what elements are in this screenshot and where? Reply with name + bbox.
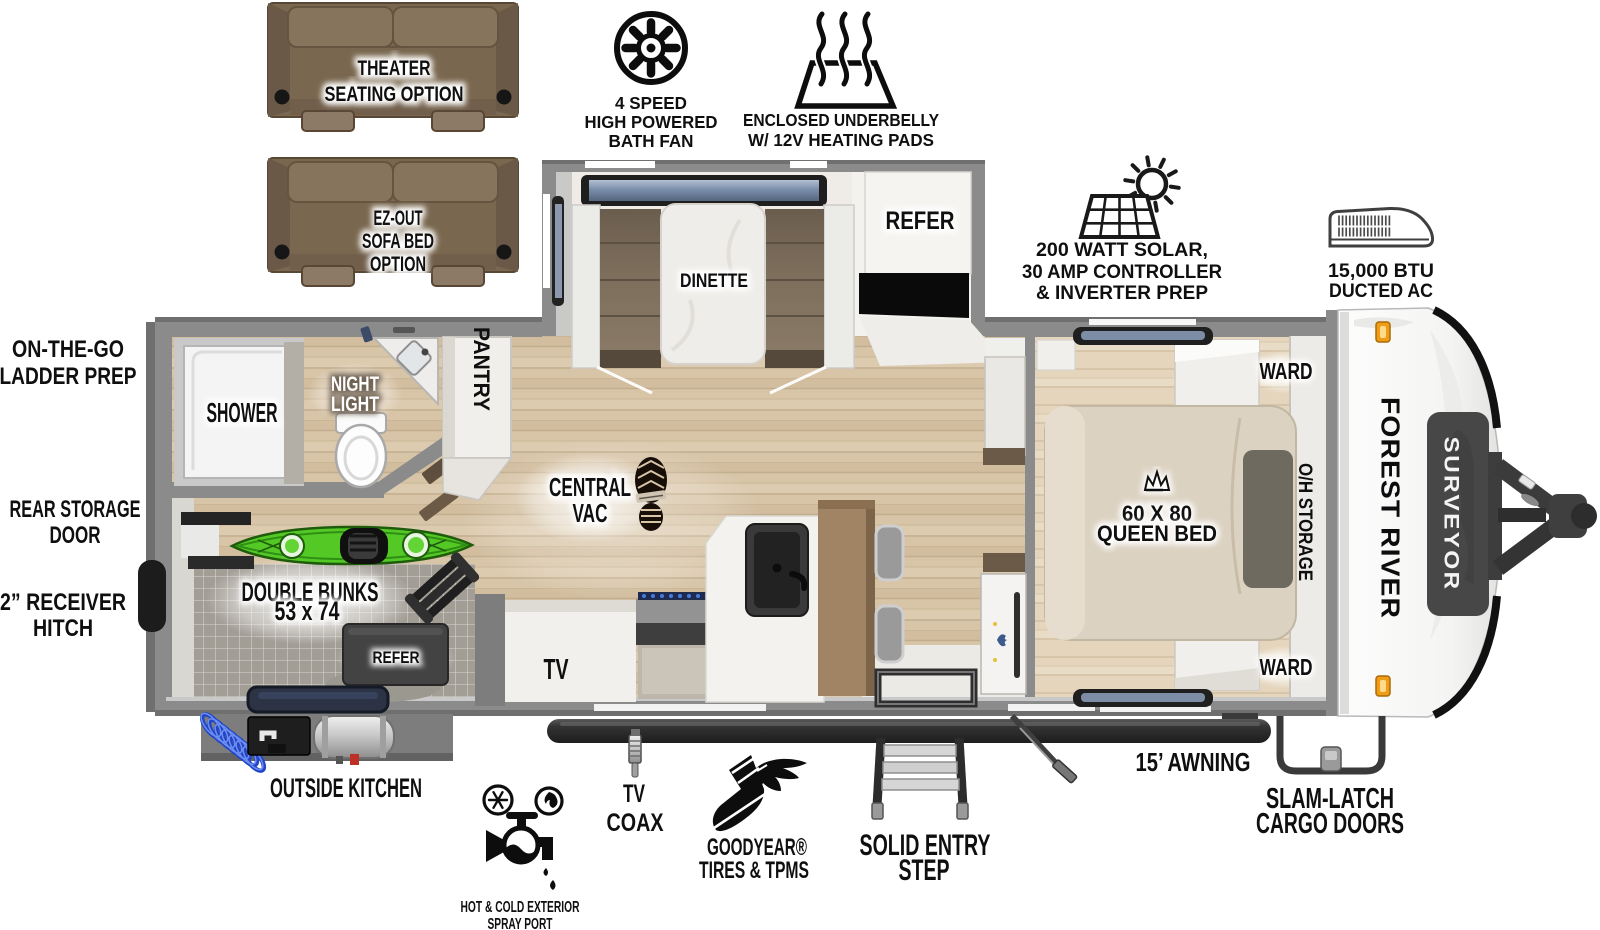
svg-text:COAX: COAX (607, 809, 664, 837)
svg-text:30 AMP CONTROLLER: 30 AMP CONTROLLER (1022, 262, 1222, 283)
svg-text:LIGHT: LIGHT (331, 393, 379, 416)
svg-text:ENCLOSED UNDERBELLY: ENCLOSED UNDERBELLY (743, 110, 939, 130)
svg-text:DUCTED AC: DUCTED AC (1329, 281, 1433, 302)
svg-text:TIRES & TPMS: TIRES & TPMS (699, 857, 809, 884)
svg-text:VAC: VAC (573, 498, 608, 528)
svg-text:SPRAY PORT: SPRAY PORT (488, 916, 553, 930)
svg-text:OUTSIDE KITCHEN: OUTSIDE KITCHEN (270, 773, 422, 803)
svg-text:HOT & COLD EXTERIOR: HOT & COLD EXTERIOR (461, 899, 580, 916)
svg-text:FOREST RIVER: FOREST RIVER (1376, 397, 1406, 619)
svg-text:SURVEYOR: SURVEYOR (1439, 437, 1462, 592)
svg-text:BATH FAN: BATH FAN (609, 131, 694, 151)
svg-text:PANTRY: PANTRY (469, 327, 494, 411)
svg-text:O/H STORAGE: O/H STORAGE (1294, 463, 1315, 581)
svg-text:4 SPEED: 4 SPEED (615, 93, 687, 113)
svg-text:REFER: REFER (373, 648, 420, 667)
svg-text:2” RECEIVER: 2” RECEIVER (0, 589, 126, 616)
svg-text:DOOR: DOOR (50, 522, 101, 549)
svg-text:REAR STORAGE: REAR STORAGE (10, 496, 141, 523)
svg-text:DINETTE: DINETTE (680, 271, 748, 292)
svg-text:OPTION: OPTION (370, 253, 426, 276)
svg-text:& INVERTER PREP: & INVERTER PREP (1036, 283, 1208, 304)
svg-text:SEATING OPTION: SEATING OPTION (325, 83, 464, 106)
svg-text:15’ AWNING: 15’ AWNING (1136, 747, 1251, 777)
svg-text:HITCH: HITCH (33, 615, 93, 642)
svg-text:THEATER: THEATER (358, 57, 431, 80)
svg-text:TV: TV (544, 654, 569, 686)
svg-text:QUEEN BED: QUEEN BED (1097, 521, 1217, 546)
svg-text:STEP: STEP (899, 854, 950, 887)
svg-text:ON-THE-GO: ON-THE-GO (12, 336, 124, 363)
svg-text:200 WATT SOLAR,: 200 WATT SOLAR, (1036, 240, 1208, 261)
svg-text:SHOWER: SHOWER (207, 397, 278, 428)
svg-text:CARGO DOORS: CARGO DOORS (1256, 808, 1404, 840)
svg-text:EZ-OUT: EZ-OUT (374, 207, 423, 230)
svg-text:WARD: WARD (1260, 654, 1313, 680)
svg-text:LADDER PREP: LADDER PREP (0, 363, 137, 390)
svg-text:SOFA BED: SOFA BED (362, 230, 434, 253)
svg-text:W/ 12V HEATING PADS: W/ 12V HEATING PADS (748, 130, 934, 150)
svg-text:15,000 BTU: 15,000 BTU (1328, 261, 1434, 282)
svg-text:TV: TV (623, 780, 645, 808)
svg-text:REFER: REFER (886, 207, 955, 235)
svg-text:53 x 74: 53 x 74 (275, 596, 340, 626)
svg-text:WARD: WARD (1260, 358, 1313, 384)
svg-text:HIGH POWERED: HIGH POWERED (585, 112, 718, 132)
